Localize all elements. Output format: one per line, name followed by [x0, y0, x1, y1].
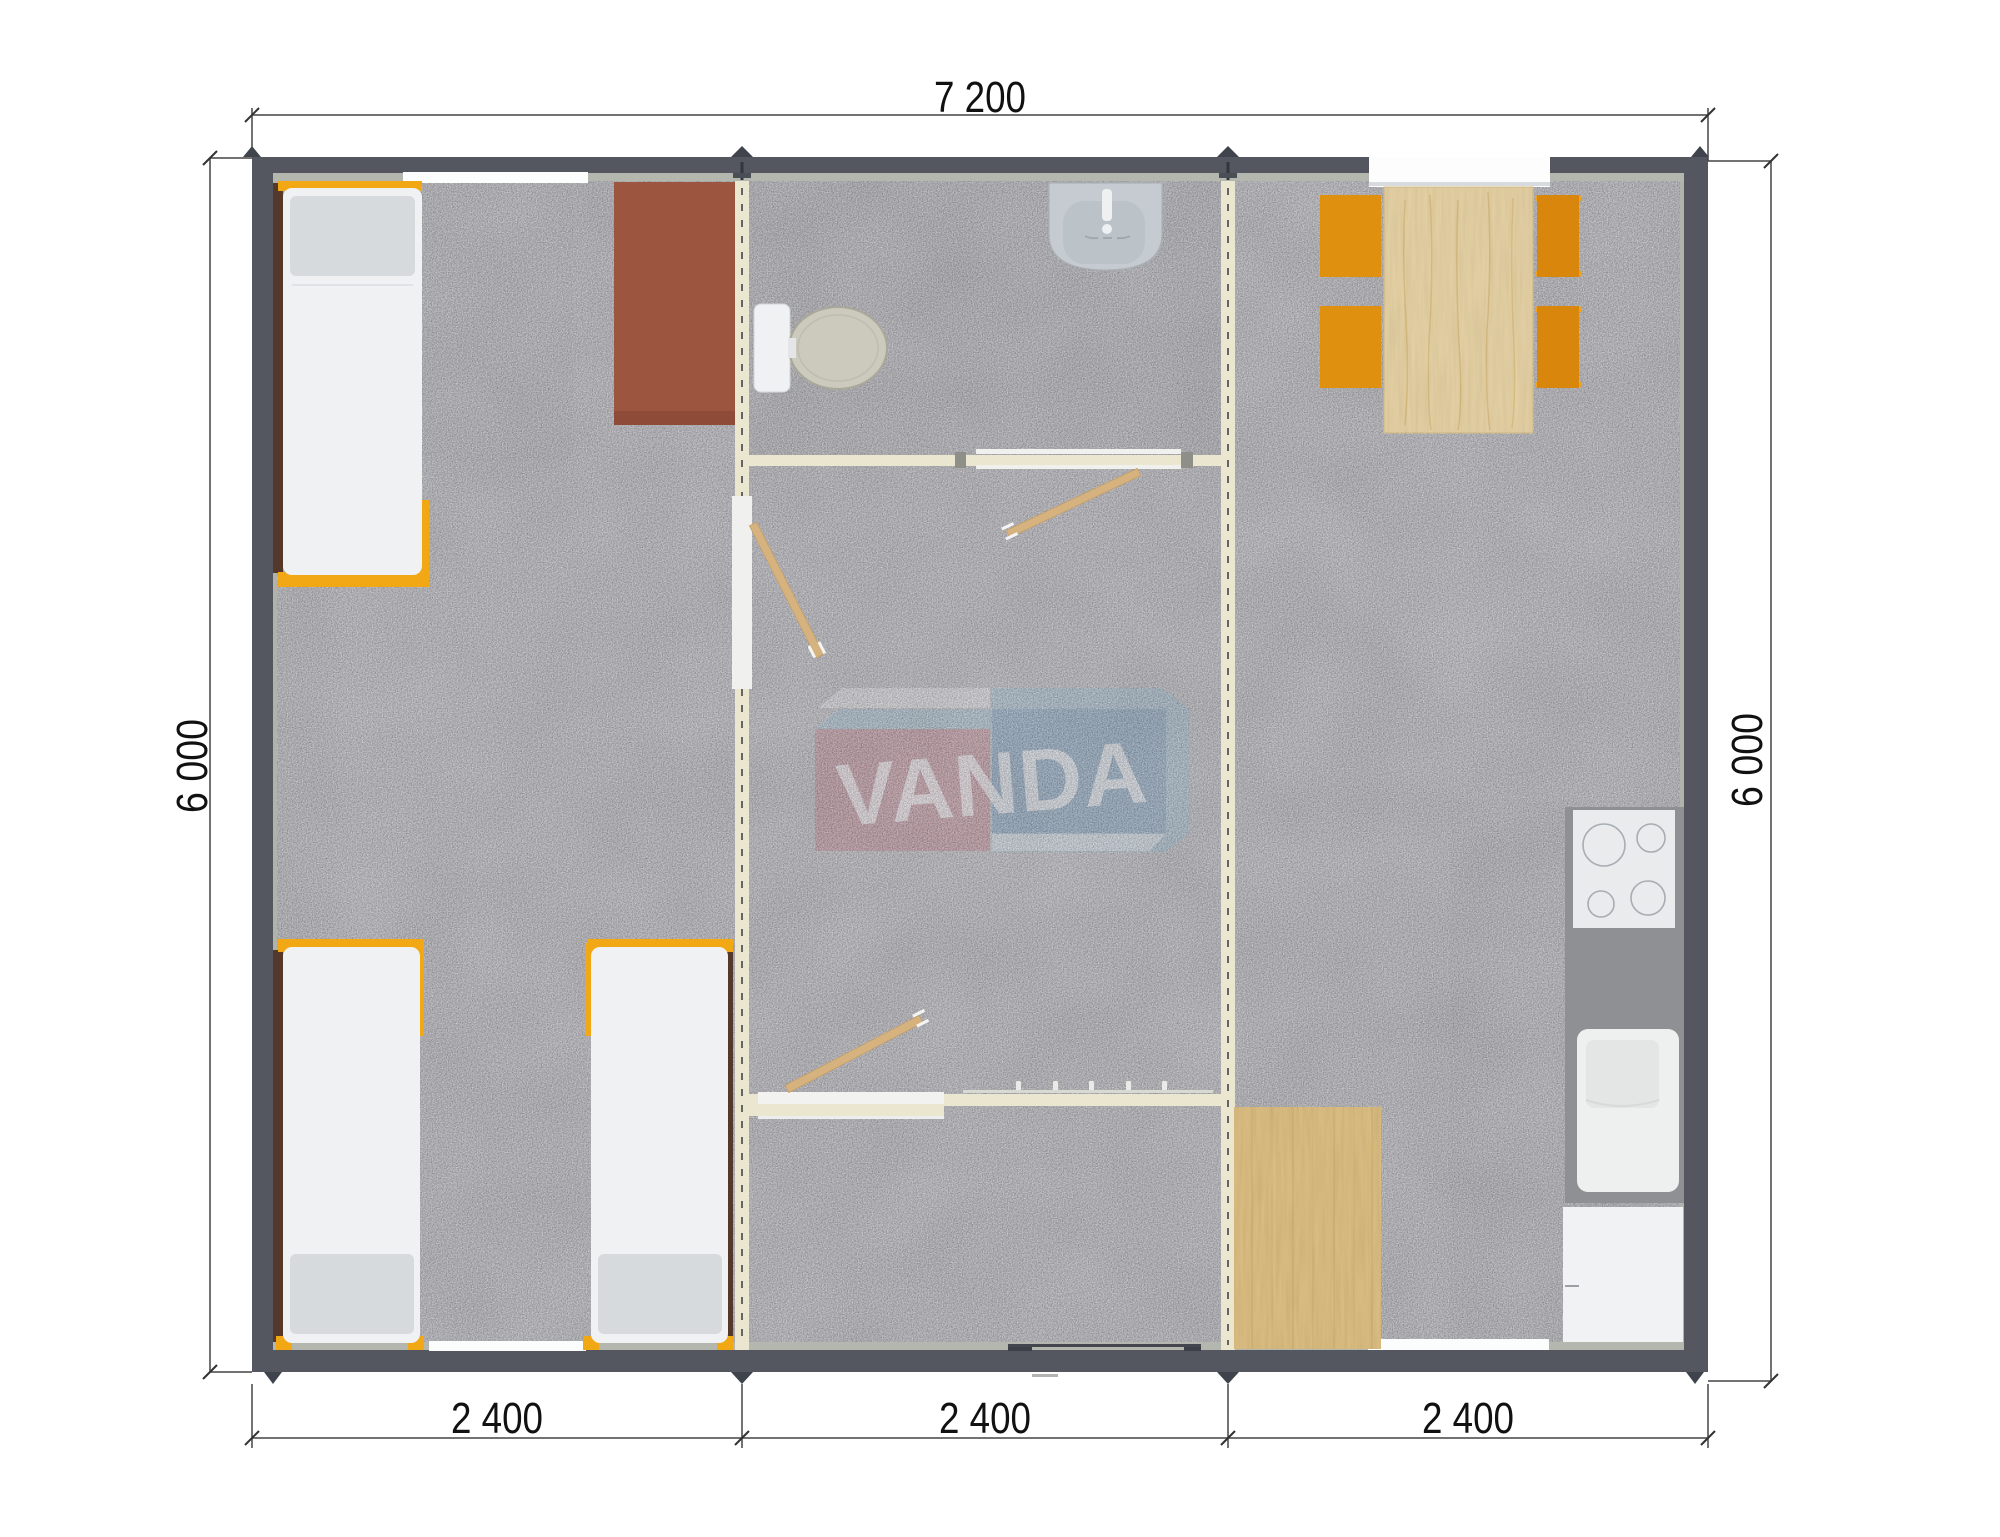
svg-text:2 400: 2 400 [451, 1394, 543, 1443]
svg-text:6 000: 6 000 [1723, 713, 1772, 807]
svg-text:2 400: 2 400 [939, 1394, 1031, 1443]
svg-text:7 200: 7 200 [934, 73, 1026, 122]
svg-text:2 400: 2 400 [1422, 1394, 1514, 1443]
svg-text:6 000: 6 000 [168, 719, 217, 813]
